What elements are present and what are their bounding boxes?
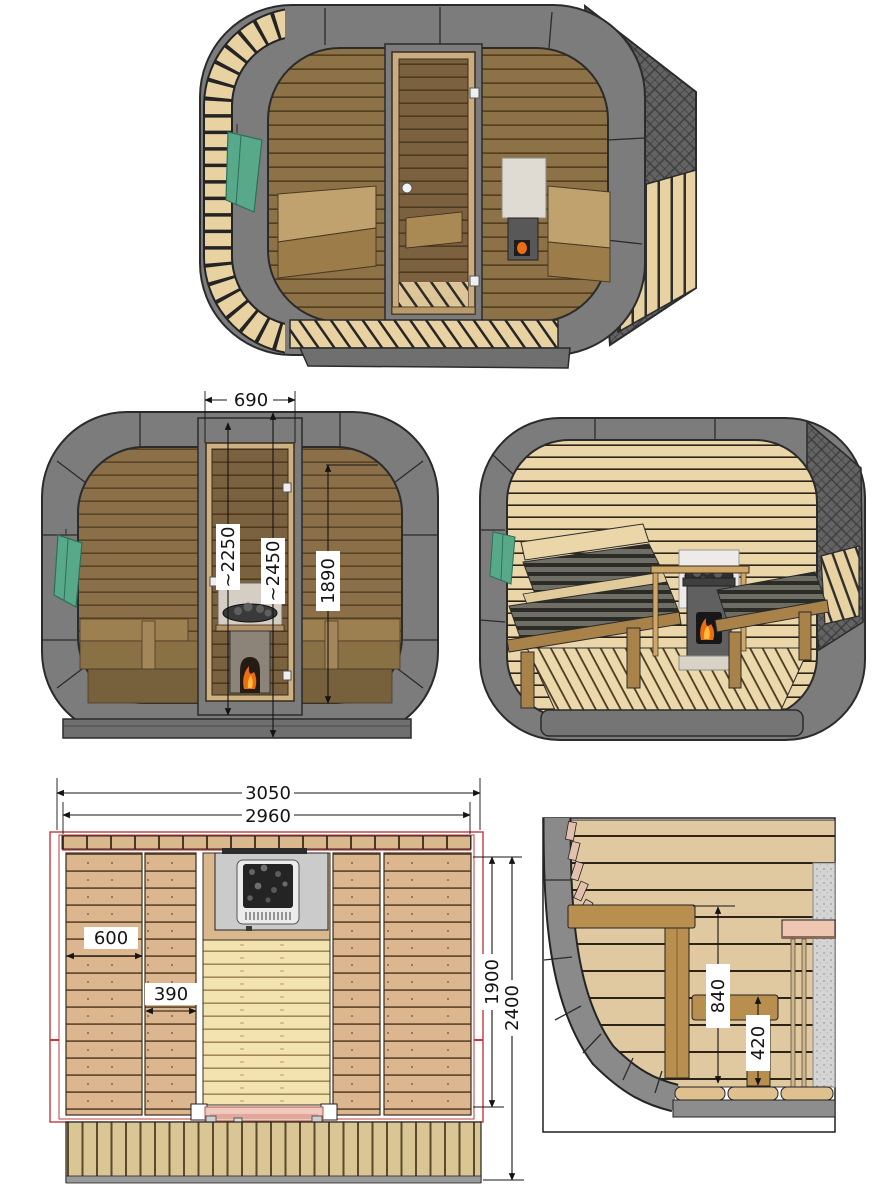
base-skid	[63, 719, 411, 738]
door-threshold	[392, 307, 475, 314]
dimension-label: 3050	[245, 783, 291, 804]
front-deck-slats	[290, 320, 558, 348]
floor-boards	[675, 1087, 833, 1100]
door-hinge-top	[470, 88, 479, 98]
floor-through-door	[399, 282, 468, 307]
dimension-label: 1890	[318, 558, 339, 604]
door-hinge-top	[283, 483, 291, 492]
towel-icon	[490, 532, 515, 584]
door-hinge-bottom	[283, 671, 291, 680]
dimension-label: ~2450	[263, 541, 284, 602]
terrace-deck	[66, 1122, 481, 1182]
stool-through-door	[406, 212, 462, 248]
door	[198, 418, 302, 715]
dimension-body-width: 2960	[63, 802, 470, 834]
right-bench-wide	[384, 853, 471, 1115]
center-floor	[203, 940, 330, 1105]
dimension-label: 420	[748, 1026, 769, 1060]
heater-wall-rail	[222, 848, 307, 854]
right-bench-narrow	[333, 853, 380, 1115]
door-hinge-bottom	[470, 276, 479, 286]
heater-area	[203, 848, 330, 940]
dimension-label: 1900	[482, 959, 503, 1005]
base-skid	[541, 710, 803, 736]
perspective-view	[140, 0, 700, 380]
door-handle	[402, 183, 412, 193]
stove-floor-pad	[679, 656, 737, 670]
dimension-label: 600	[94, 928, 128, 949]
dimension-label: ~2250	[218, 527, 239, 588]
base-skid	[673, 1100, 835, 1117]
door-glass	[399, 59, 468, 307]
front-elevation-view: 690 ~2250 ~2450 1890	[30, 385, 450, 750]
sauna-technical-drawing-sheet: 690 ~2250 ~2450 1890	[0, 0, 872, 1200]
dimension-label: 390	[154, 984, 188, 1005]
terrace-edge	[66, 1176, 481, 1183]
dimension-label: 840	[708, 979, 729, 1013]
right-bench-top	[548, 186, 610, 248]
back-wall-planks	[62, 836, 471, 849]
heater-wall-column	[813, 863, 835, 1087]
left-bench-wide	[66, 853, 142, 1115]
plan-view: 3050 2960 600 390 1900	[40, 770, 530, 1190]
right-bench-front	[548, 242, 610, 282]
dimension-label: 2960	[245, 806, 291, 827]
dimension-label: 690	[234, 390, 268, 411]
interior-cutaway-view	[475, 410, 872, 745]
door	[385, 44, 482, 322]
section-detail-view: 840 420	[535, 810, 872, 1200]
dimension-overall-depth: 2400	[483, 857, 524, 1180]
base-skid	[300, 348, 570, 368]
guard-rail	[651, 566, 749, 573]
dimension-label: 2400	[502, 985, 523, 1031]
heater-control	[246, 926, 252, 931]
floor-slats	[527, 648, 809, 710]
